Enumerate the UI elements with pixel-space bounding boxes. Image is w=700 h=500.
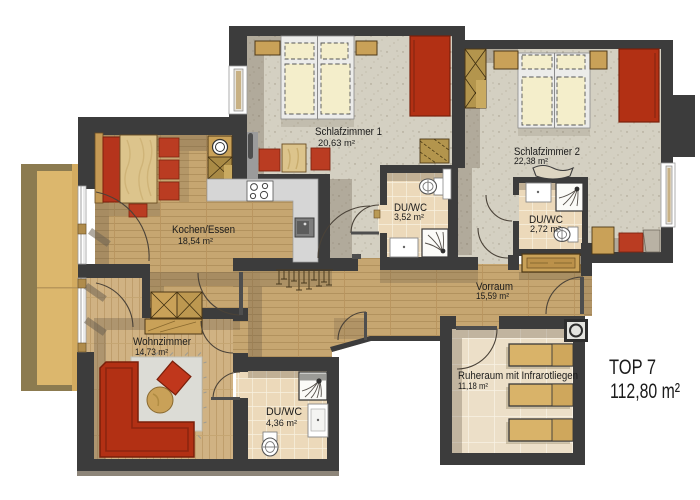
- svg-text:22,38 m²: 22,38 m²: [514, 156, 548, 166]
- svg-text:14,73 m²: 14,73 m²: [135, 347, 168, 357]
- svg-text:DU/WC: DU/WC: [266, 406, 302, 418]
- svg-text:3,52 m²: 3,52 m²: [394, 212, 424, 222]
- svg-text:TOP 7: TOP 7: [609, 356, 656, 379]
- svg-text:2,72 m²: 2,72 m²: [530, 224, 561, 234]
- svg-text:20,63 m²: 20,63 m²: [318, 138, 355, 148]
- svg-text:11,18 m²: 11,18 m²: [458, 381, 488, 391]
- svg-text:Schlafzimmer 1: Schlafzimmer 1: [315, 126, 382, 138]
- svg-text:15,59 m²: 15,59 m²: [476, 291, 509, 301]
- svg-text:18,54 m²: 18,54 m²: [178, 236, 213, 246]
- svg-text:112,80 m²: 112,80 m²: [610, 380, 680, 403]
- svg-text:Kochen/Essen: Kochen/Essen: [172, 224, 235, 236]
- svg-text:4,36 m²: 4,36 m²: [266, 418, 297, 428]
